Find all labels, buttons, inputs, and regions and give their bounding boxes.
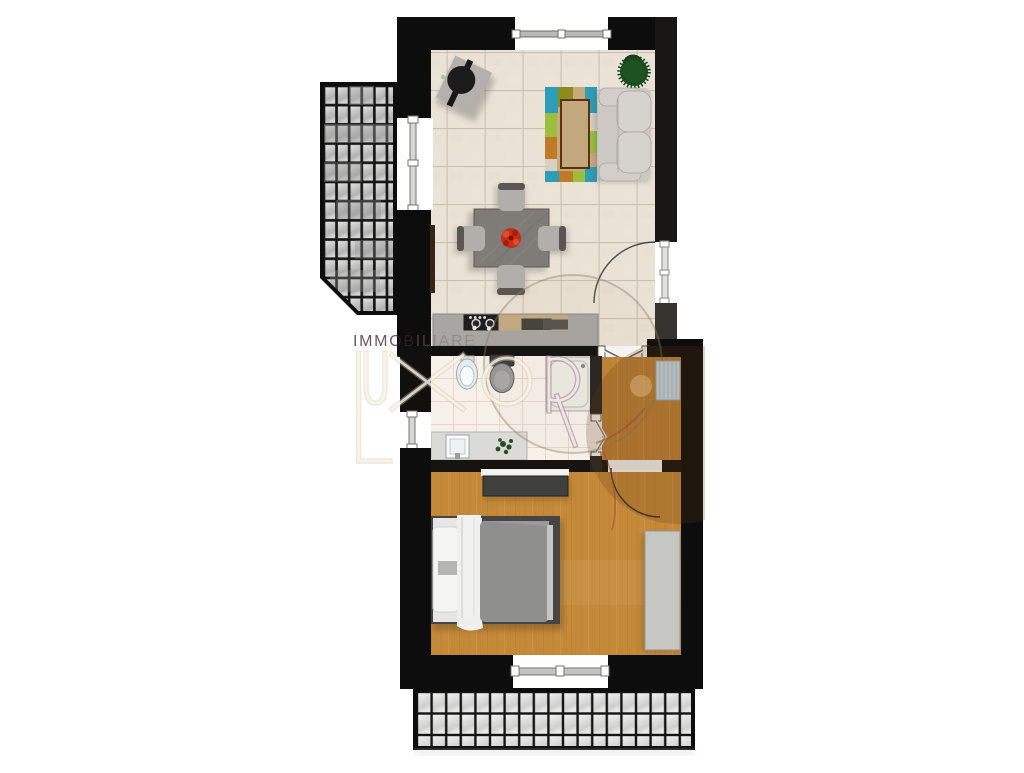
svg-text:IMMOBILIARE: IMMOBILIARE	[353, 333, 477, 350]
